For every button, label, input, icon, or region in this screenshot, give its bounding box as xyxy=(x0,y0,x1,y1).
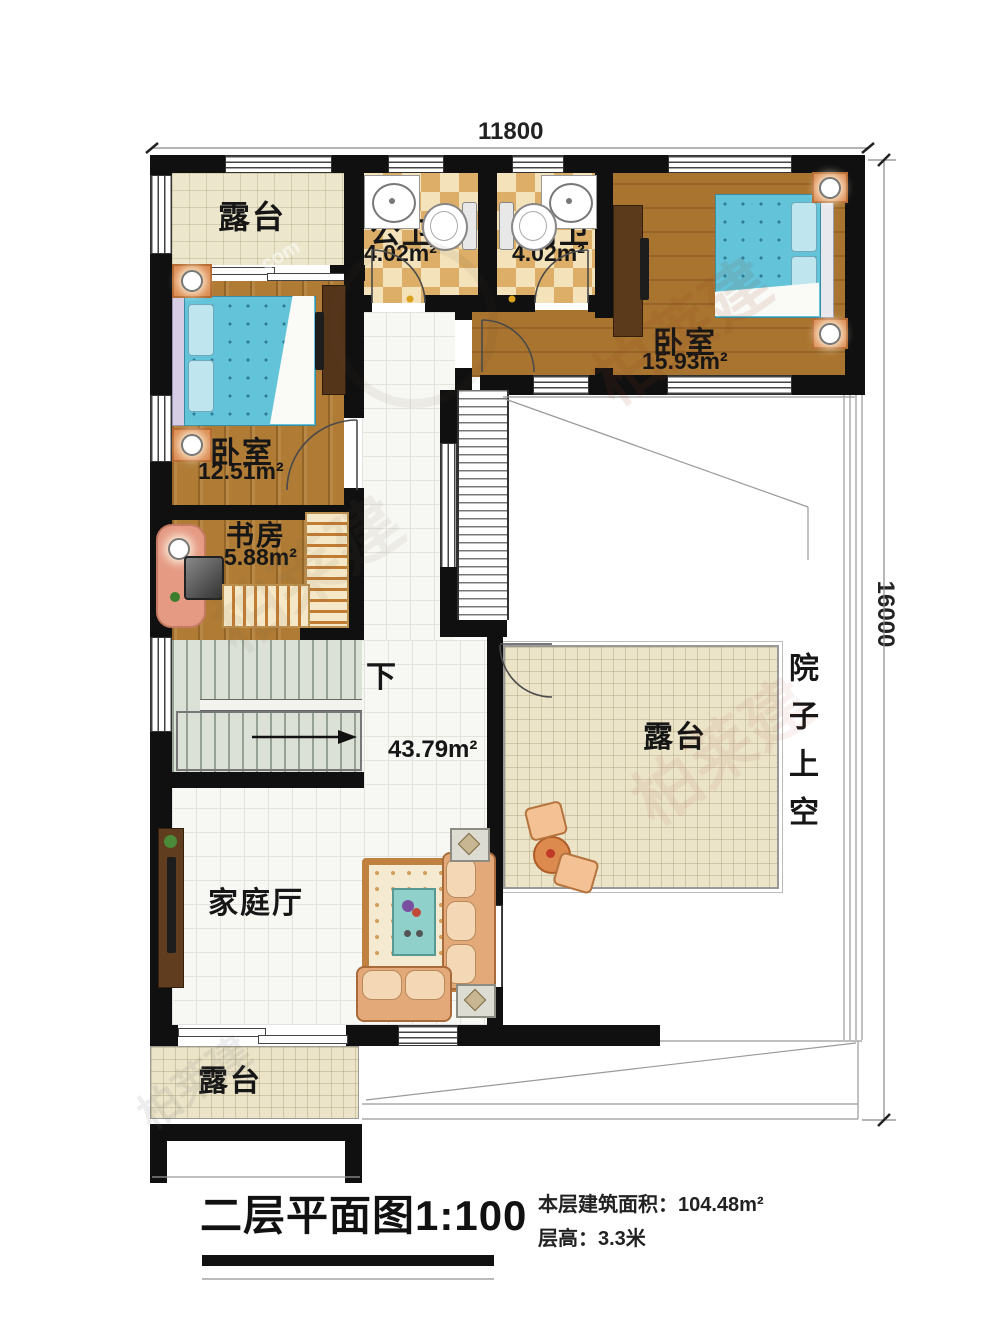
toilet-icon xyxy=(422,200,476,250)
coffee-table-icon xyxy=(392,888,436,956)
bed-icon xyxy=(715,194,845,316)
sofa-icon xyxy=(356,966,452,1022)
tv-cabinet-icon xyxy=(158,828,184,988)
nightstand-icon xyxy=(172,428,212,462)
floor-plan-page: 露台 公卫 4.02m² 内卫 4.02m² 卧室 15.93m² 卧室 12.… xyxy=(0,0,1000,1333)
nightstand-icon xyxy=(172,264,212,298)
monitor-icon xyxy=(184,556,224,600)
tv-cabinet-icon xyxy=(322,285,346,395)
nightstand-icon xyxy=(812,318,848,349)
side-table-icon xyxy=(456,984,496,1018)
wardrobe-icon xyxy=(305,512,349,628)
dresser-tv-icon xyxy=(613,205,643,337)
sink-icon xyxy=(364,175,420,229)
bed-icon xyxy=(172,296,314,424)
toilet-icon xyxy=(499,200,553,250)
wardrobe-icon xyxy=(222,584,310,628)
nightstand-icon xyxy=(812,172,848,203)
side-table-icon xyxy=(450,828,490,862)
